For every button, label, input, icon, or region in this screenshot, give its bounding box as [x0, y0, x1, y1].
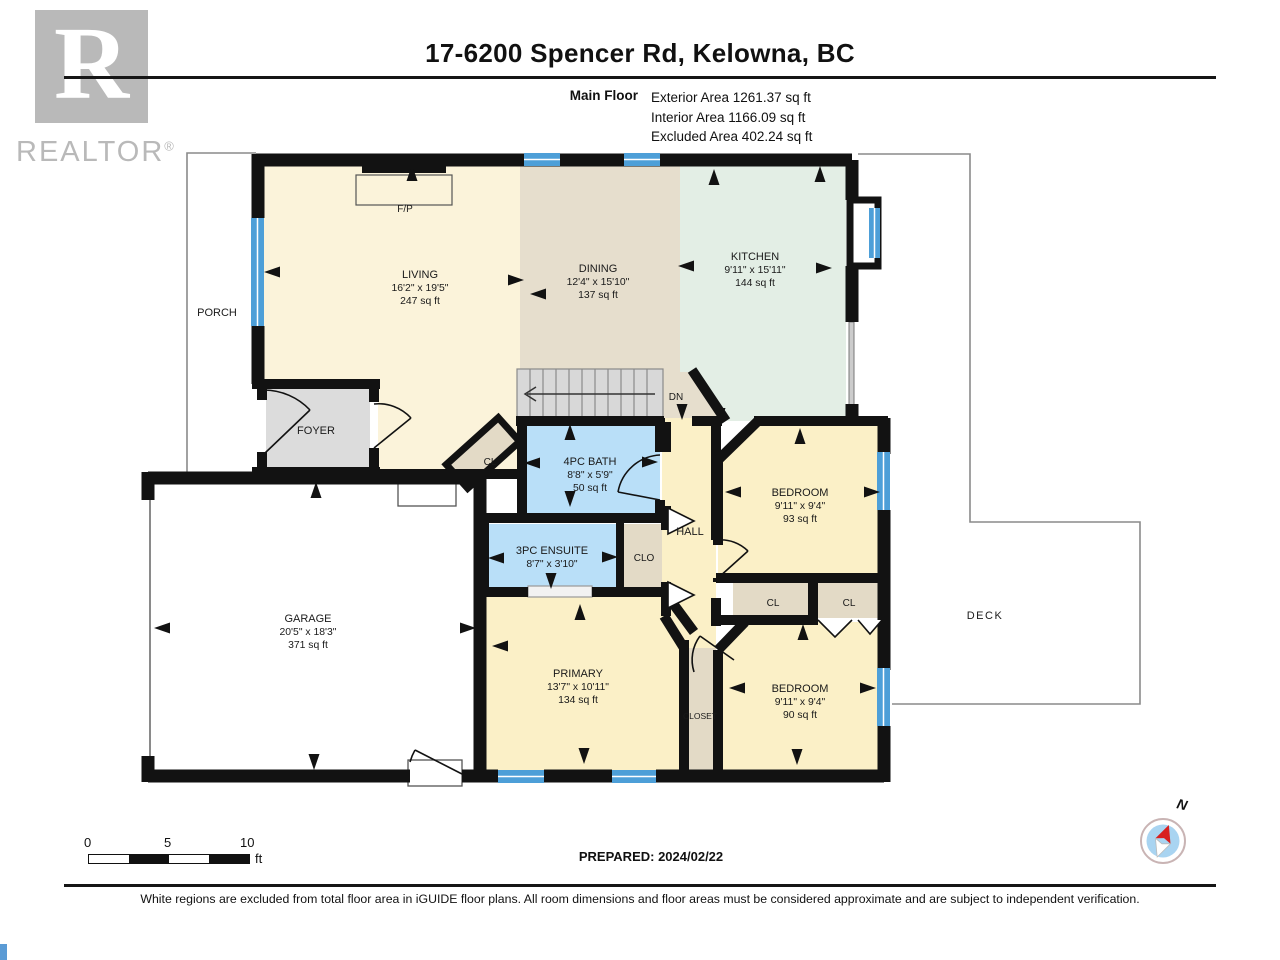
primary-dims: 13'7" x 10'11" — [547, 682, 609, 693]
primary-label: PRIMARY — [553, 668, 604, 680]
disclaimer-text: White regions are excluded from total fl… — [0, 892, 1280, 906]
floor-plan: LIVING 16'2" x 19'5" 247 sq ft DINING 12… — [0, 0, 1280, 960]
bedroom1-label: BEDROOM — [772, 487, 829, 499]
scale-tick-0: 0 — [84, 835, 91, 850]
bedroom1-dims: 9'11" x 9'4" — [775, 501, 826, 512]
bedroom2-area: 90 sq ft — [783, 710, 817, 721]
cl-a-label: CL — [767, 598, 780, 609]
stairs-down-label: DN — [669, 392, 683, 403]
bedroom1-area: 93 sq ft — [783, 514, 817, 525]
bedroom2-label: BEDROOM — [772, 683, 829, 695]
bath-area: 50 sq ft — [573, 483, 607, 494]
bath-fill — [522, 422, 660, 516]
hall-label: HALL — [676, 526, 704, 538]
kitchen-area: 144 sq ft — [735, 278, 775, 289]
living-dims: 16'2" x 19'5" — [392, 283, 449, 294]
garage-label: GARAGE — [284, 613, 331, 625]
cl-c-label: CL — [484, 457, 497, 468]
ensuite-label: 3PC ENSUITE — [516, 545, 588, 557]
corner-mark — [0, 944, 7, 960]
scale-unit: ft — [255, 851, 262, 866]
dining-dims: 12'4" x 15'10" — [567, 277, 630, 288]
scale-bar — [88, 854, 250, 864]
living-label: LIVING — [402, 269, 438, 281]
garage-dims: 20'5" x 18'3" — [280, 627, 337, 638]
scale-tick-10: 10 — [240, 835, 254, 850]
primary-area: 134 sq ft — [558, 695, 598, 706]
footer-divider — [64, 884, 1216, 887]
prepared-date: PREPARED: 2024/02/22 — [540, 849, 762, 864]
bath-label: 4PC BATH — [564, 456, 617, 468]
ensuite-dims: 8'7" x 3'10" — [526, 559, 578, 570]
fireplace-label: F/P — [397, 204, 413, 215]
porch-label: PORCH — [197, 307, 237, 319]
primary-closet-label: CLOSET — [683, 711, 717, 721]
kitchen-label: KITCHEN — [731, 251, 779, 263]
garage-area: 371 sq ft — [288, 640, 328, 651]
fireplace — [356, 158, 452, 205]
ensuite-half-wall — [528, 586, 592, 597]
cl-b-label: CL — [843, 598, 856, 609]
foyer-label: FOYER — [297, 425, 335, 437]
dining-area: 137 sq ft — [578, 290, 618, 301]
bedroom2-dims: 9'11" x 9'4" — [775, 697, 826, 708]
clo-label: CLO — [634, 553, 655, 564]
bay-window — [850, 200, 880, 266]
deck-label: DECK — [967, 610, 1004, 622]
kitchen-dims: 9'11" x 15'11" — [724, 265, 786, 276]
bath-dims: 8'8" x 5'9" — [567, 470, 613, 481]
compass-icon: N — [1130, 788, 1202, 872]
garage-step-bottom — [408, 760, 462, 786]
dining-label: DINING — [579, 263, 618, 275]
living-area: 247 sq ft — [400, 296, 440, 307]
staircase — [517, 369, 663, 419]
scale-tick-5: 5 — [164, 835, 171, 850]
compass-north-label: N — [1175, 795, 1190, 813]
kitchen-slider-door — [849, 322, 854, 406]
